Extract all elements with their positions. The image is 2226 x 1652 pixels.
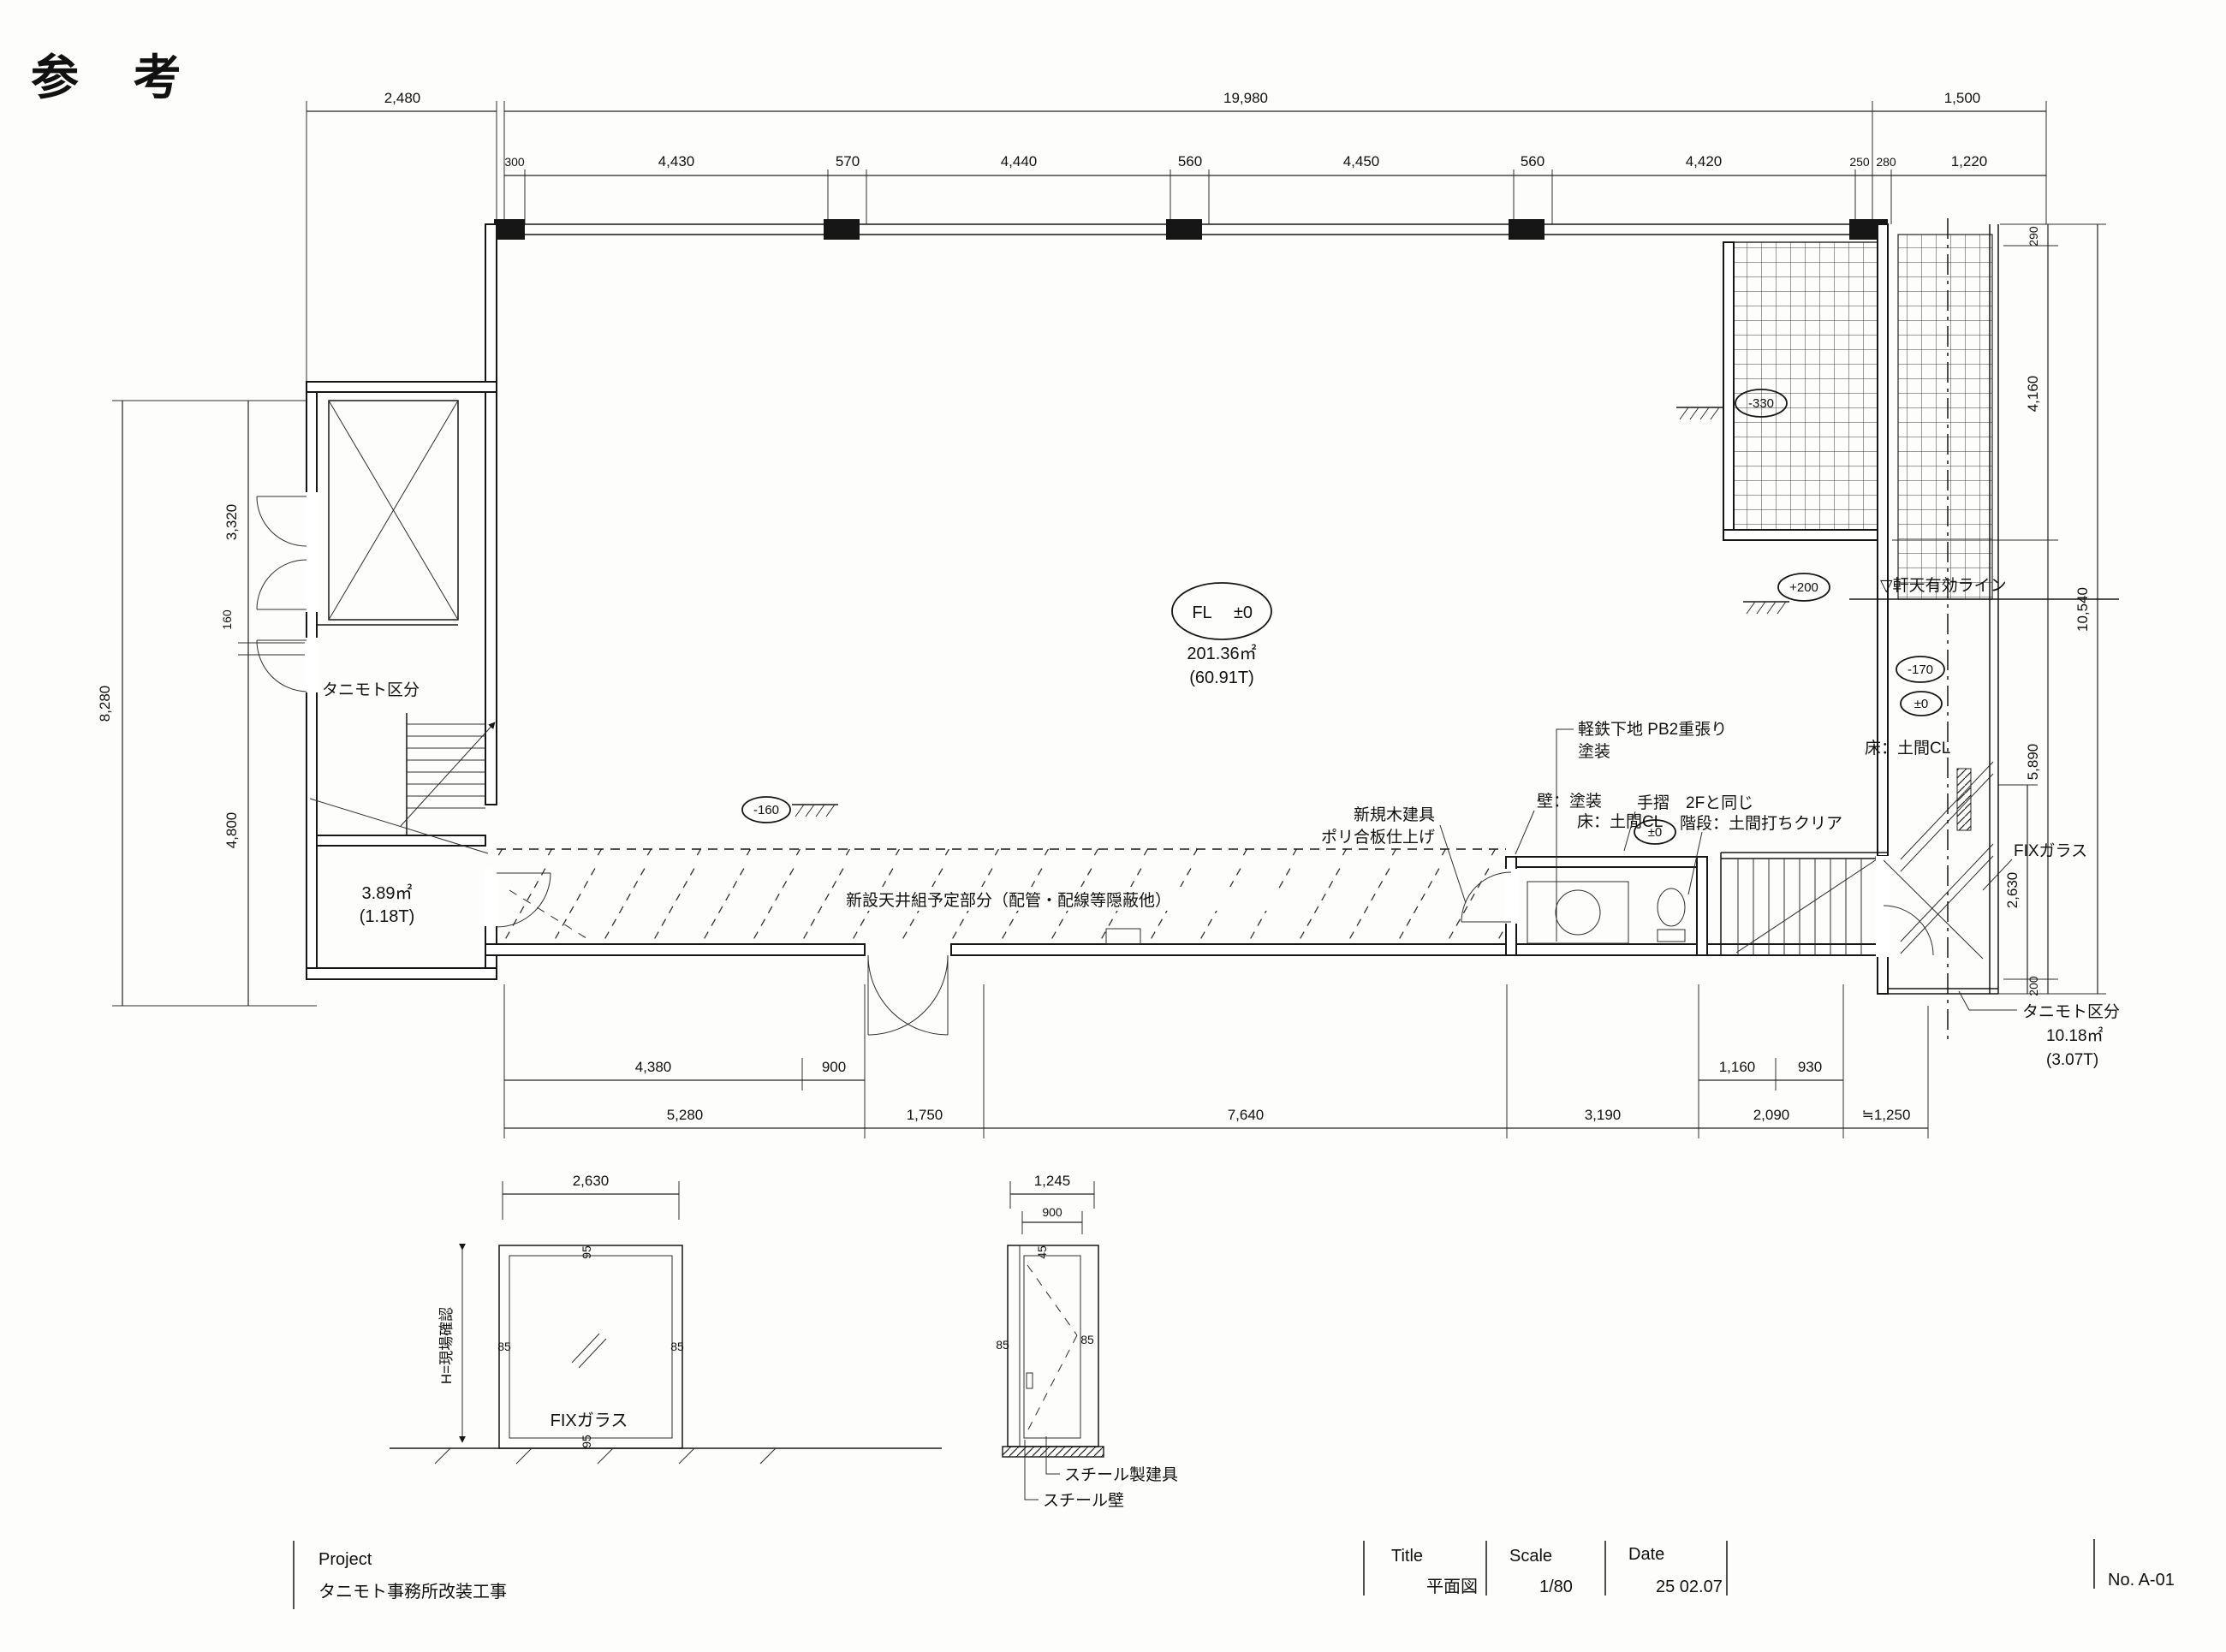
new-door-note-2: ポリ合板仕上げ xyxy=(1321,828,1435,847)
dim-bottom-main-4: 2,090 xyxy=(1753,1107,1790,1123)
right-stairs xyxy=(1721,853,1888,955)
dim-right-sub-0: 290 xyxy=(2027,226,2040,247)
dim-left-sub-2: 4,800 xyxy=(223,812,240,849)
detail-door-leaf-label: スチール製建具 xyxy=(1064,1465,1178,1484)
detail-fix-height-note: H=現場確認 xyxy=(438,1307,455,1384)
tanimoto-right-area: 10.18㎡ xyxy=(2046,1025,2104,1045)
project-name: タニモト事務所改装工事 xyxy=(318,1582,507,1601)
scale-label: Scale xyxy=(1509,1547,1552,1566)
tanimoto-right-tsubo: (3.07T) xyxy=(2046,1051,2098,1069)
dim-top-sub-8: 250 xyxy=(1849,155,1870,169)
detail-fix-label: FIXガラス xyxy=(551,1411,628,1430)
dim-top-overall: 19,980 xyxy=(1223,90,1268,106)
dim-top-sub-7: 4,420 xyxy=(1686,153,1723,169)
dim-top-sub-0: 300 xyxy=(504,155,525,169)
dim-bottom-main-0: 5,280 xyxy=(667,1107,704,1123)
dim-bottom-sub-0: 4,380 xyxy=(635,1059,672,1075)
dim-top-right: 1,500 xyxy=(1944,90,1981,106)
title-block: Project タニモト事務所改装工事 Title 平面図 Scale 1/80… xyxy=(294,1539,2175,1609)
new-door-note-1: 新規木建具 xyxy=(1354,805,1435,824)
fix-glass-plan-label: FIXガラス xyxy=(2014,841,2087,860)
fl-prefix: FL xyxy=(1192,603,1211,622)
room-area: 201.36㎡ xyxy=(1187,643,1256,663)
small-room-area: 3.89㎡ xyxy=(362,882,413,903)
detail-door-jamb-left: 85 xyxy=(996,1338,1009,1352)
dim-bottom-sub-2: 1,160 xyxy=(1719,1059,1756,1075)
dim-top-sub-10: 1,220 xyxy=(1951,153,1988,169)
detail-fix-jamb-right: 85 xyxy=(670,1340,684,1353)
title-label: Title xyxy=(1391,1547,1423,1566)
level-approach: -330 xyxy=(1748,396,1774,411)
floor-cl-note-b: 床：土間CL xyxy=(1865,739,1950,758)
dim-top-left: 2,480 xyxy=(384,90,421,106)
dim-top-sub-3: 4,440 xyxy=(1001,153,1038,169)
dim-bottom-main-5: ≒1,250 xyxy=(1862,1107,1911,1123)
dim-top-sub-1: 4,430 xyxy=(658,153,695,169)
date-label: Date xyxy=(1628,1545,1664,1564)
detail-steel-door: 1,245 900 85 85 45 スチール製建具 スチール壁 xyxy=(996,1173,1178,1510)
wall-paint-note: 壁：塗装 xyxy=(1537,791,1602,811)
reference-mark: 参 考 xyxy=(31,51,202,104)
dim-right-fix-width: 2,630 xyxy=(2004,872,2021,909)
dim-right-sub-2: 5,890 xyxy=(2025,744,2041,781)
center-double-door xyxy=(868,955,948,1035)
small-room-tsubo: (1.18T) xyxy=(360,907,414,926)
detail-door-jamb-right: 85 xyxy=(1080,1333,1094,1346)
detail-fix-head: 95 xyxy=(580,1245,593,1259)
dims-bottom: 4,380 900 1,160 930 5,280 1,750 7,640 3,… xyxy=(504,984,1928,1138)
dim-left-sub-1: 160 xyxy=(220,609,234,630)
dim-right-overall: 10,540 xyxy=(2074,587,2091,632)
dim-bottom-main-3: 3,190 xyxy=(1585,1107,1622,1123)
ceiling-strip: 新設天井組予定部分（配管・配線等隠蔽他） xyxy=(497,849,1506,944)
dim-bottom-main-1: 1,750 xyxy=(907,1107,943,1123)
detail-door-head: 45 xyxy=(1035,1245,1049,1259)
wall-base-note-1: 軽鉄下地 PB2重張り xyxy=(1578,720,1727,739)
wall-base-note-2: 塗装 xyxy=(1578,741,1610,761)
dim-bottom-main-2: 7,640 xyxy=(1228,1107,1265,1123)
detail-fix-jamb-left: 85 xyxy=(497,1340,511,1353)
dim-bottom-sub-3: 930 xyxy=(1798,1059,1822,1075)
tanimoto-left-label: タニモト区分 xyxy=(322,680,420,699)
detail-door-opening: 900 xyxy=(1042,1205,1062,1219)
stair-finish-note: 階段：土間打ちクリア xyxy=(1680,814,1842,833)
dims-left: 8,280 3,320 160 4,800 xyxy=(97,401,317,1006)
dim-top-sub-9: 280 xyxy=(1876,155,1896,169)
detail-fix-width: 2,630 xyxy=(573,1173,610,1189)
dim-top-sub-4: 560 xyxy=(1178,153,1202,169)
handrail-note: 手摺 2Fと同じ xyxy=(1637,793,1753,812)
dim-bottom-sub-1: 900 xyxy=(822,1059,846,1075)
dim-right-sub-1: 4,160 xyxy=(2025,376,2041,413)
dim-left-overall: 8,280 xyxy=(97,686,113,722)
dim-right-sub-3: 200 xyxy=(2027,976,2040,996)
sheet-number: No. A-01 xyxy=(2108,1571,2175,1590)
date-value: 25 02.07 xyxy=(1656,1578,1723,1596)
dim-left-sub-0: 3,320 xyxy=(223,504,240,541)
detail-fix-sill: 95 xyxy=(580,1435,593,1448)
dim-top-sub-6: 560 xyxy=(1521,153,1545,169)
eave-line-label: ▽軒天有効ライン xyxy=(1880,576,2007,595)
fl-level: ±0 xyxy=(1234,603,1253,622)
detail-door-overall: 1,245 xyxy=(1034,1173,1071,1189)
detail-door-wall-label: スチール壁 xyxy=(1043,1491,1124,1510)
dim-top-sub-5: 4,450 xyxy=(1343,153,1380,169)
scale-value: 1/80 xyxy=(1539,1578,1573,1596)
ceiling-note: 新設天井組予定部分（配管・配線等隠蔽他） xyxy=(846,891,1171,910)
drawing-sheet: 参 考 2,480 19,980 1,500 300 4,430 570 4,4… xyxy=(0,0,2226,1652)
room-area-tsubo: (60.91T) xyxy=(1189,669,1254,687)
title-value: 平面図 xyxy=(1426,1578,1478,1596)
detail-fix-glass: 2,630 85 85 95 95 FIXガラス H=現場確認 xyxy=(390,1173,942,1464)
ground-hatches xyxy=(792,407,1789,817)
tanimoto-right-label: タニモト区分 xyxy=(2022,1002,2120,1021)
floor-plan-svg: 参 考 2,480 19,980 1,500 300 4,430 570 4,4… xyxy=(0,0,2226,1652)
level-left-door: -160 xyxy=(753,803,779,817)
dim-top-sub-2: 570 xyxy=(836,153,860,169)
level-entry: +200 xyxy=(1789,580,1818,595)
level-terrace: -170 xyxy=(1908,663,1933,677)
floor-cl-note-a: 床：土間CL xyxy=(1577,812,1663,831)
project-label: Project xyxy=(318,1550,372,1569)
level-terrace-fl: ±0 xyxy=(1914,697,1929,711)
